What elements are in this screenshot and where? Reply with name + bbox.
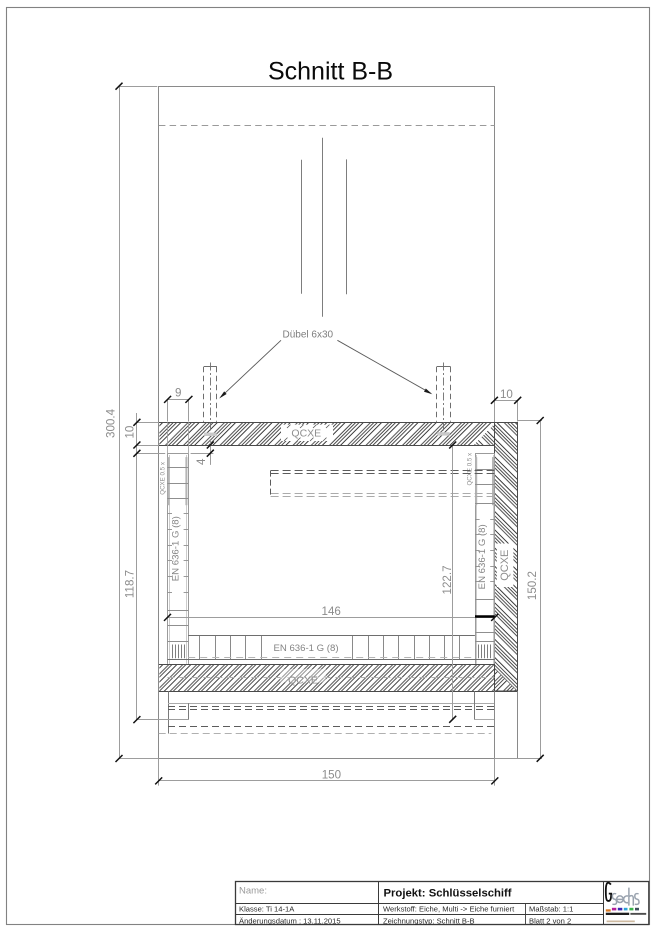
svg-text:Klasse: Ti 14-1A: Klasse: Ti 14-1A [239, 905, 295, 914]
svg-text:QCXE: QCXE [499, 550, 511, 581]
svg-text:Änderungsdatum : 13.11.2015: Änderungsdatum : 13.11.2015 [239, 916, 341, 925]
svg-text:150.2: 150.2 [526, 571, 539, 600]
svg-text:EN 636-1 G (8): EN 636-1 G (8) [170, 516, 181, 581]
svg-text:QCXE: QCXE [288, 674, 318, 686]
svg-text:9: 9 [175, 386, 181, 399]
svg-text:10: 10 [124, 426, 137, 439]
svg-text:146: 146 [322, 605, 341, 618]
svg-text:Schnitt B-B: Schnitt B-B [268, 58, 393, 86]
svg-text:Projekt: Schlüsselschiff: Projekt: Schlüsselschiff [384, 888, 512, 900]
svg-text:Name:: Name: [239, 886, 267, 897]
svg-text:10: 10 [500, 388, 513, 401]
svg-text:150: 150 [322, 768, 341, 781]
svg-text:122.7: 122.7 [441, 565, 454, 594]
svg-text:Zeichnungstyp: Schnitt B-B: Zeichnungstyp: Schnitt B-B [383, 916, 475, 925]
svg-text:Werkstoff: Eiche, Multi -> Eic: Werkstoff: Eiche, Multi -> Eiche furnier… [383, 905, 515, 914]
svg-text:300.4: 300.4 [105, 408, 118, 438]
svg-text:Blatt 2 von 2: Blatt 2 von 2 [529, 916, 571, 925]
svg-text:118.7: 118.7 [124, 570, 137, 598]
svg-text:Maßstab: 1:1: Maßstab: 1:1 [529, 905, 573, 914]
svg-text:QCXE 0.5 x: QCXE 0.5 x [160, 461, 167, 495]
svg-text:QCXE: QCXE [291, 428, 321, 440]
svg-text:QCXE 0.5 x: QCXE 0.5 x [466, 452, 473, 486]
svg-text:Dübel 6x30: Dübel 6x30 [283, 329, 334, 340]
svg-text:EN 636-1 G (8): EN 636-1 G (8) [477, 524, 488, 589]
svg-text:EN 636-1 G (8): EN 636-1 G (8) [273, 643, 338, 654]
svg-text:4: 4 [195, 458, 208, 465]
